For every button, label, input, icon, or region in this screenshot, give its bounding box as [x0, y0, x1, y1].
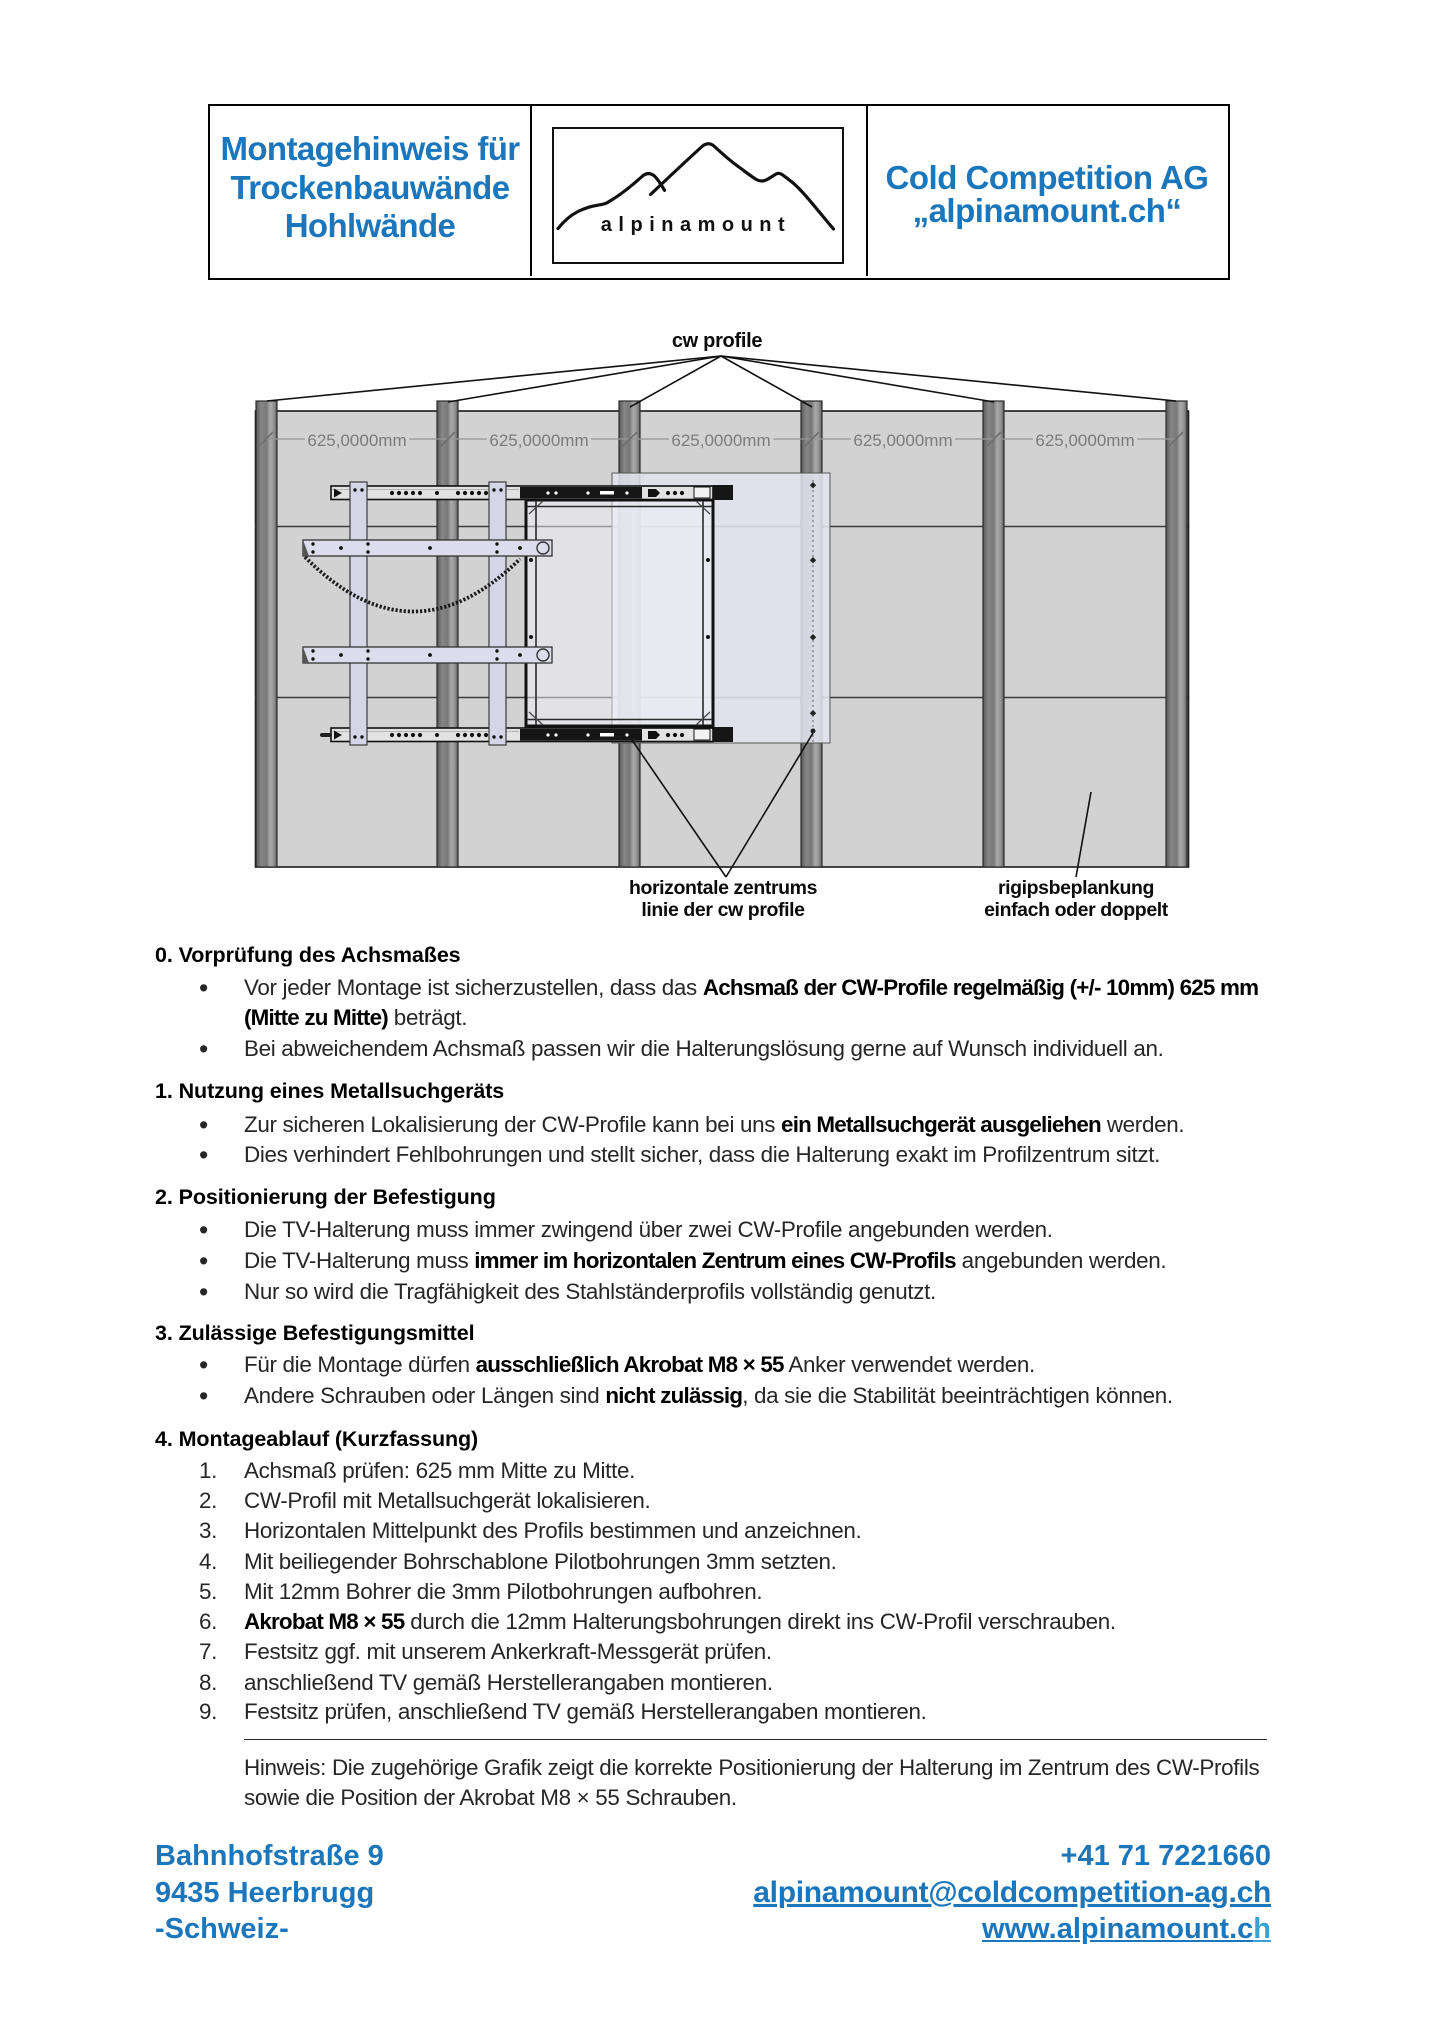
svg-text:rigipsbeplankung: rigipsbeplankung [998, 877, 1154, 899]
svg-text:625,0000mm: 625,0000mm [1035, 431, 1134, 450]
svg-text:horizontale zentrums: horizontale zentrums [629, 877, 818, 899]
svg-text:einfach oder doppelt: einfach oder doppelt [984, 899, 1169, 921]
svg-text:linie der cw profile: linie der cw profile [641, 899, 805, 921]
svg-text:625,0000mm: 625,0000mm [671, 431, 770, 450]
svg-text:625,0000mm: 625,0000mm [307, 431, 406, 450]
svg-text:cw profile: cw profile [672, 330, 763, 352]
svg-text:625,0000mm: 625,0000mm [489, 431, 588, 450]
svg-text:625,0000mm: 625,0000mm [853, 431, 952, 450]
